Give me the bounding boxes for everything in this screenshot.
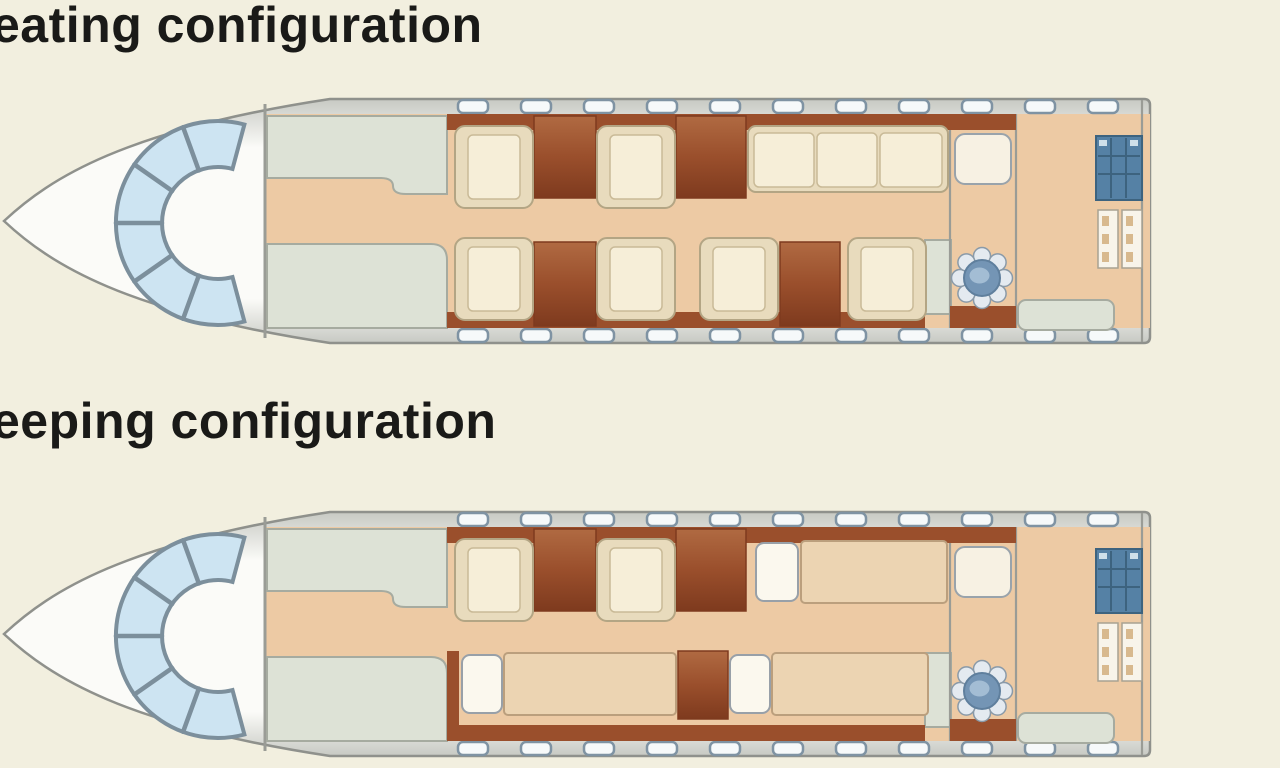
wood-cabinet: [780, 242, 840, 326]
page: { "page": { "background": "#f2efdf" }, "…: [0, 0, 1280, 768]
sleeping-configuration-title: eeping configuration: [0, 392, 496, 450]
aircraft-seating-diagram: [0, 90, 1165, 352]
wood-credenza-bottom: [447, 725, 925, 741]
bed: [462, 653, 676, 715]
divan: [748, 126, 948, 192]
wood-partition: [447, 651, 459, 739]
pillow: [462, 655, 502, 713]
bed: [756, 541, 947, 603]
wood-cabinet: [676, 116, 746, 198]
wood-cabinet: [678, 651, 728, 719]
wood-cabinet: [534, 529, 596, 611]
pillow: [730, 655, 770, 713]
mattress: [772, 653, 928, 715]
wood-cabinet: [534, 242, 596, 326]
bed: [730, 653, 928, 715]
seating-configuration-title: eating configuration: [0, 0, 483, 54]
wood-cabinet: [676, 529, 746, 611]
pillow: [756, 543, 798, 601]
wood-cabinet: [534, 116, 596, 198]
aircraft-sleeping-diagram: [0, 503, 1165, 765]
mattress: [801, 541, 947, 603]
mattress: [504, 653, 676, 715]
